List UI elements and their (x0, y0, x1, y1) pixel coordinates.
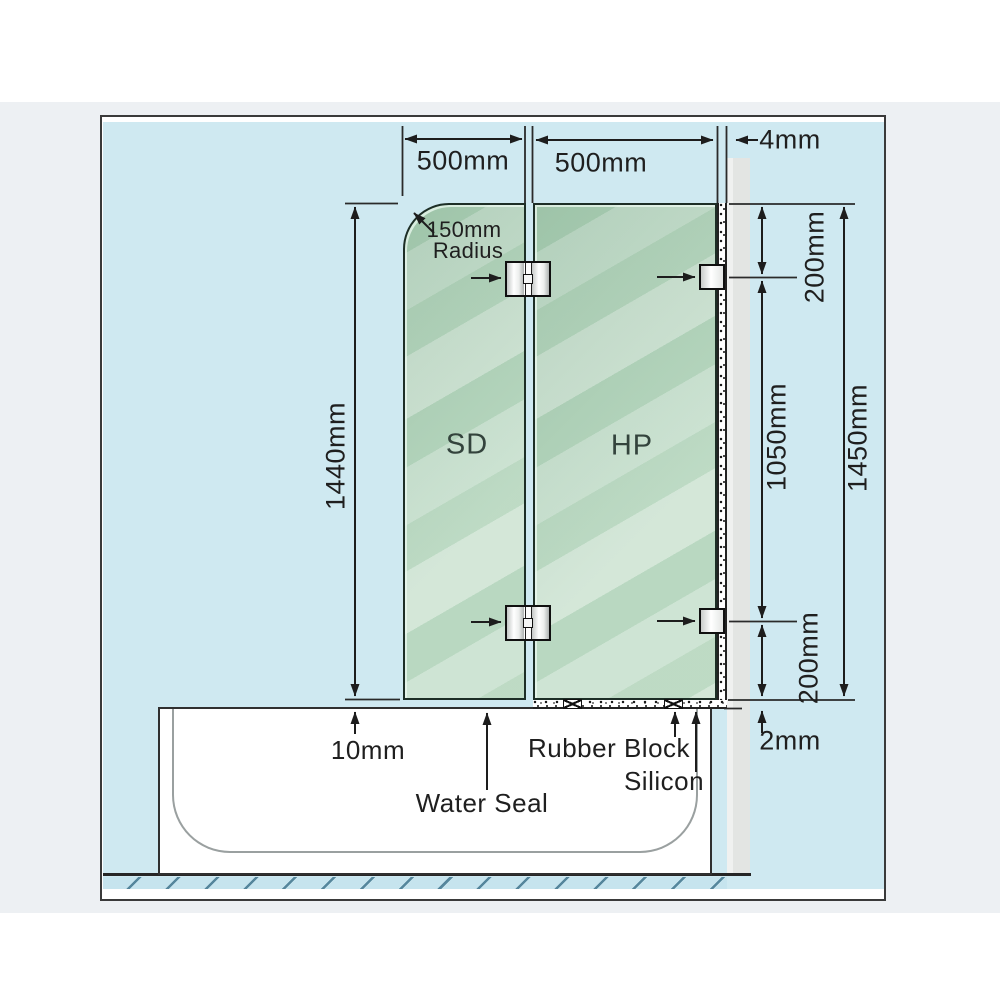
panel-label-hp: HP (611, 432, 653, 461)
dim-label-200-top: 200mm (802, 211, 829, 304)
dim-label-200-bottom: 200mm (796, 612, 823, 705)
radius-label-line2: Radius (433, 240, 503, 262)
dim-label-10mm: 10mm (331, 737, 405, 763)
dim-label-4mm: 4mm (759, 127, 821, 154)
dim-label-2mm: 2mm (759, 728, 821, 755)
shower-screen-diagram: 500mm 500mm 4mm 150mm Radius 1440mm 200m… (0, 0, 1000, 1000)
panel-label-sd: SD (446, 431, 488, 460)
dim-label-1440: 1440mm (323, 402, 350, 510)
dim-label-1450: 1450mm (845, 384, 872, 492)
silicon-label: Silicon (624, 768, 704, 794)
water-seal-label: Water Seal (416, 790, 549, 816)
rubber-block-label: Rubber Block (528, 735, 690, 761)
dim-label-500-right: 500mm (555, 150, 648, 177)
dim-label-1050: 1050mm (764, 383, 791, 491)
dim-label-500-left: 500mm (417, 148, 510, 175)
